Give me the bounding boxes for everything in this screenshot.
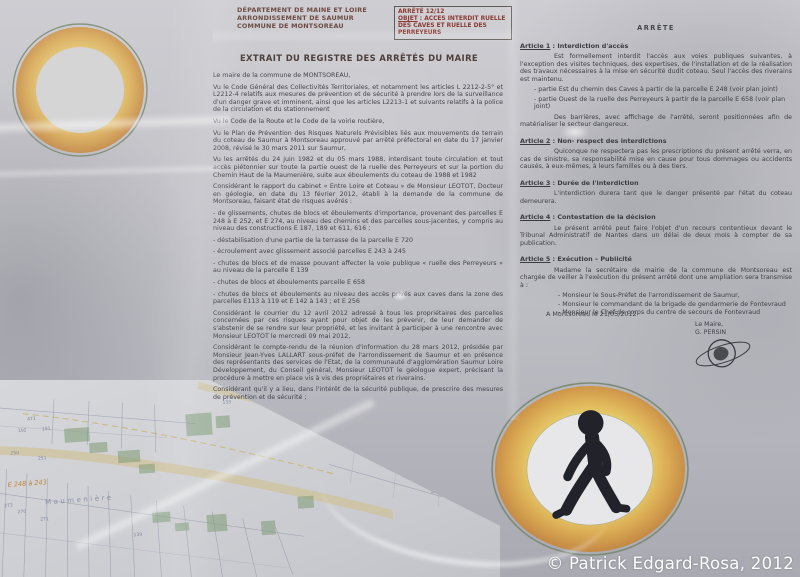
mayor-stamp-icon bbox=[693, 332, 759, 382]
article-1-heading: Article 1 : Interdiction d'accès bbox=[520, 43, 792, 51]
preamble-risk-item: - chutes de blocs et éboulements parcell… bbox=[213, 279, 503, 287]
map-label: 270 bbox=[17, 509, 26, 516]
preamble-paragraph: Vu les arrêtés du 24 juin 1982 et du 05 … bbox=[213, 156, 503, 179]
article-5-bullet: - Monsieur le commandant de la brigade d… bbox=[558, 301, 792, 309]
article-3-paragraph: L'interdiction durera tant que le danger… bbox=[520, 190, 792, 205]
department-block: DÉPARTEMENT DE MAINE ET LOIRE ARRONDISSE… bbox=[237, 6, 367, 31]
preamble-paragraph: Considérant le compte-rendu de la réunio… bbox=[213, 344, 503, 382]
map-label: 471 bbox=[27, 416, 36, 423]
cadastral-map: 471192191250251273270271139133E 248 à 24… bbox=[0, 380, 500, 577]
preamble-risk-item: - chutes de blocs et de masse pouvant af… bbox=[213, 260, 503, 275]
preamble-risk-item: - chutes de blocs et éboulements au nive… bbox=[213, 291, 503, 306]
preamble-paragraph: Vu le Code de la Route et le Code de la … bbox=[213, 118, 503, 126]
reflection-streak bbox=[0, 163, 220, 180]
preamble-paragraph: Considérant le courrier du 12 avril 2012… bbox=[213, 310, 503, 340]
article-3-heading: Article 3 : Durée de l'interdiction bbox=[520, 180, 792, 188]
map-label: 251 bbox=[38, 455, 47, 462]
preamble-paragraph: Le maire de la commune de MONTSOREAU, bbox=[213, 72, 503, 80]
preamble-risk-item: - de glissements, chutes de blocs et ébo… bbox=[213, 210, 503, 233]
article-1-bullet: - partie Ouest de la ruelle des Perreyeu… bbox=[534, 96, 792, 111]
notice-board-photo: 471192191250251273270271139133E 248 à 24… bbox=[0, 0, 800, 577]
article-5-heading: Article 5 : Exécution – Publicité bbox=[520, 256, 792, 264]
map-label: E 248 à 243 bbox=[7, 478, 47, 489]
preamble-risk-item: - déstabilisation d'une partie de la ter… bbox=[213, 237, 503, 245]
map-label: 250 bbox=[10, 450, 19, 457]
article-2: Article 2 : Non- respect des interdictio… bbox=[520, 138, 792, 171]
preamble-paragraph: Considérant qu'il y a lieu, dans l'intér… bbox=[213, 386, 503, 401]
commune-line: COMMUNE DE MONTSOREAU bbox=[237, 22, 367, 30]
article-2-heading: Article 2 : Non- respect des interdictio… bbox=[520, 138, 792, 146]
articles-column: ARRÊTE Article 1 : Interdiction d'accès … bbox=[520, 25, 792, 318]
signoff-title: Le Maire, bbox=[695, 321, 726, 329]
preamble-paragraph: Vu le Code Général des Collectivités Ter… bbox=[213, 84, 503, 114]
map-label: 191 bbox=[42, 426, 51, 433]
preamble-paragraph: Considérant le rapport du cabinet « Entr… bbox=[213, 183, 503, 206]
map-label: 273 bbox=[4, 503, 13, 510]
article-5: Article 5 : Exécution – Publicité Madame… bbox=[520, 256, 792, 317]
reflection-streak bbox=[505, 0, 521, 420]
arrondissement-line: ARRONDISSEMENT DE SAUMUR bbox=[237, 14, 367, 22]
article-3: Article 3 : Durée de l'interdiction L'in… bbox=[520, 180, 792, 206]
article-4-heading: Article 4 : Contestation de la décision bbox=[520, 214, 792, 222]
no-entry-ring-sign-icon bbox=[8, 18, 153, 163]
article-2-paragraph: Quiconque ne respectera pas les prescrip… bbox=[520, 148, 792, 171]
document-title: EXTRAIT DU REGISTRE DES ARRÊTÉS DU MAIRE bbox=[213, 53, 505, 63]
preamble-paragraph: Vu le Plan de Prévention des Risques Nat… bbox=[213, 130, 503, 153]
article-1-paragraph: Est formellement interdit l'accès aux vo… bbox=[520, 53, 792, 83]
photo-credit: © Patrick Edgard-Rosa, 2012 bbox=[547, 554, 794, 573]
cadastral-map-drawing: 471192191250251273270271139133E 248 à 24… bbox=[0, 380, 500, 577]
arrete-number: ARRÊTÉ 12/12 bbox=[398, 9, 508, 16]
article-1: Article 1 : Interdiction d'accès Est for… bbox=[520, 43, 792, 129]
article-5-paragraph: Madame la secrétaire de mairie de la com… bbox=[520, 267, 792, 290]
map-label: 139 bbox=[133, 532, 142, 539]
article-5-bullet: - Monsieur le Sous-Préfet de l'arrondiss… bbox=[558, 292, 792, 300]
article-4: Article 4 : Contestation de la décision … bbox=[520, 214, 792, 247]
map-label: 192 bbox=[18, 427, 27, 434]
map-label: 271 bbox=[40, 516, 49, 523]
preamble-risk-item: - écroulement avec glissement associé pa… bbox=[213, 248, 503, 256]
article-1-bullet: - partie Est du chemin des Caves à parti… bbox=[534, 86, 792, 94]
article-4-paragraph: Le présent arrêté peut faire l'objet d'u… bbox=[520, 225, 792, 248]
arrete-object: OBJET : ACCES INTERDIT RUELLE DES CAVES … bbox=[398, 16, 508, 37]
reference-box: ARRÊTÉ 12/12 OBJET : ACCES INTERDIT RUEL… bbox=[394, 6, 512, 40]
preamble-column: Le maire de la commune de MONTSOREAU, Vu… bbox=[213, 72, 503, 405]
decree-heading: ARRÊTE bbox=[520, 25, 792, 33]
department-line: DÉPARTEMENT DE MAINE ET LOIRE bbox=[237, 6, 367, 14]
no-pedestrians-sign-icon bbox=[486, 378, 696, 560]
article-1-paragraph: Des barrières, avec affichage de l'arrêt… bbox=[520, 114, 792, 129]
place-and-date: A Montsoreau le 21/05/2012 bbox=[546, 310, 637, 318]
